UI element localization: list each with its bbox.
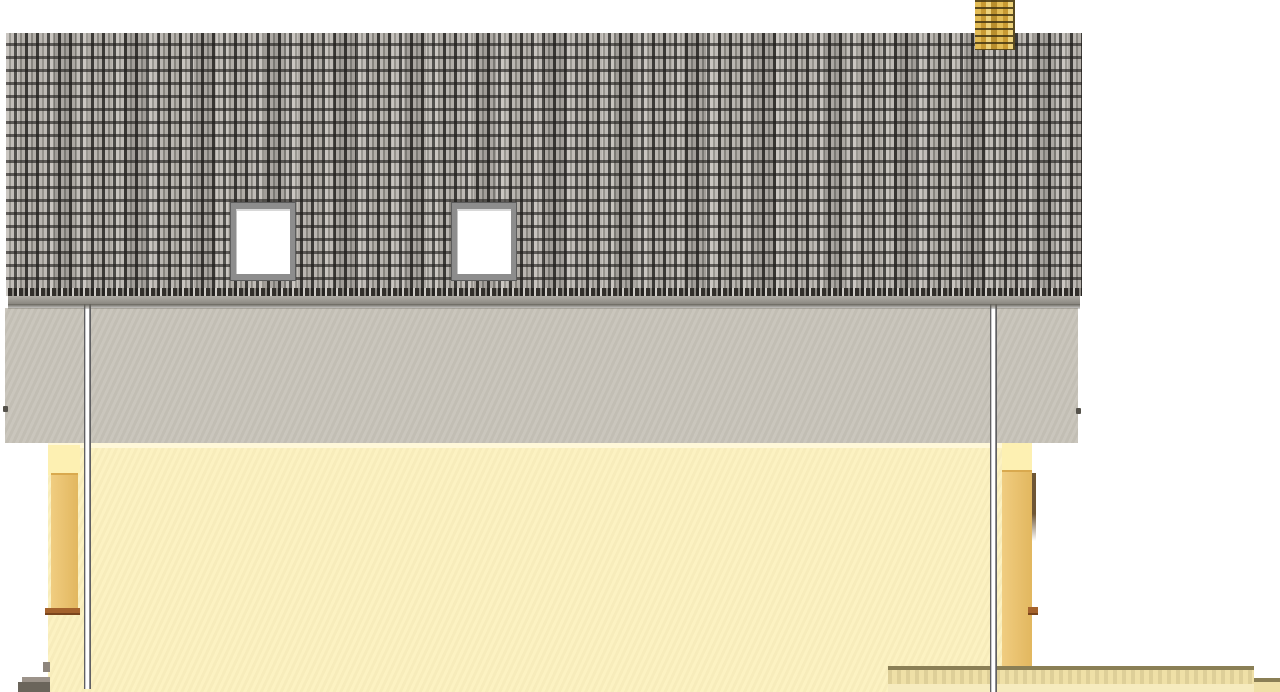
roof-window-right-glass bbox=[457, 209, 511, 274]
facade-top-highlight bbox=[48, 443, 1002, 448]
step-tab-left bbox=[43, 662, 50, 672]
facade-wall bbox=[48, 443, 1002, 692]
downpipe-left bbox=[84, 297, 91, 689]
roof-window-right bbox=[451, 202, 517, 281]
downpipe-right bbox=[990, 297, 997, 692]
step-base-left bbox=[18, 682, 50, 692]
elevation-drawing bbox=[0, 0, 1280, 692]
window-sill-left bbox=[45, 608, 80, 615]
fascia-board bbox=[8, 296, 1080, 304]
corner-return-right-top bbox=[1002, 443, 1032, 470]
roof-window-left bbox=[230, 202, 296, 281]
roof-eave-course bbox=[6, 288, 1082, 296]
corner-return-left-top bbox=[48, 445, 80, 475]
window-sill-right bbox=[1028, 607, 1038, 615]
corner-return-left bbox=[51, 473, 78, 614]
terrace-step-face bbox=[1254, 682, 1280, 692]
roof-tile-field bbox=[6, 33, 1082, 288]
corner-return-right bbox=[1002, 470, 1032, 668]
corner-edge-shadow-right bbox=[1032, 473, 1036, 541]
terrace-wall-face bbox=[888, 670, 1254, 684]
chimney bbox=[975, 0, 1015, 50]
wall-anchor-left bbox=[3, 406, 8, 412]
terrace-wall-foot bbox=[888, 684, 1254, 692]
attic-wall-band bbox=[5, 308, 1078, 443]
wall-anchor-right bbox=[1076, 408, 1081, 414]
fascia-shadow bbox=[8, 304, 1080, 309]
roof-window-left-glass bbox=[236, 209, 290, 274]
